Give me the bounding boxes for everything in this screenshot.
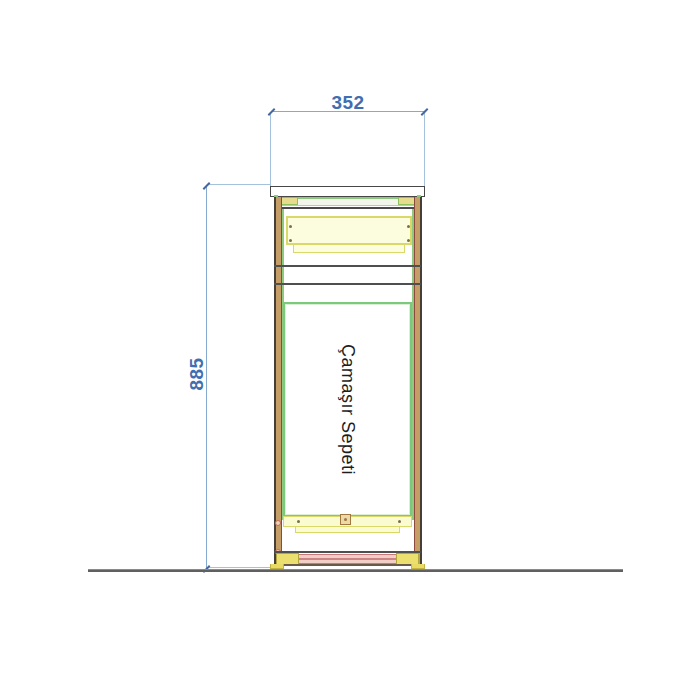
width-extension-line-left [270,112,271,186]
side-panel-right [414,197,422,569]
height-dimension-label: 885 [187,343,207,405]
cam-lock-fitting [275,520,281,526]
base-panel-line [284,558,411,560]
side-panel-left [274,197,282,569]
foot-pad-right [411,564,425,569]
height-extension-line-bottom [207,567,273,568]
divider-shelf-bottom-line [274,283,421,285]
height-dimension-line [206,185,207,569]
width-dimension-line [271,111,425,112]
screw-dot [407,239,410,242]
bottom-hardware-band-lower [295,527,400,533]
door-panel: Çamaşır Sepeti [283,302,412,517]
screw-dot [289,239,292,242]
inner-edge-right [412,209,414,520]
cabinet-top-panel [270,186,425,197]
ground-line [88,569,623,572]
center-fitting-dot [344,518,347,521]
divider-shelf-top-line [274,265,421,267]
foot-pad-left [270,564,284,569]
screw-dot [407,225,410,228]
screw-dot [398,520,401,523]
door-label: Çamaşır Sepeti [337,344,358,475]
top-rail-line [275,207,421,209]
screw-dot [297,520,300,523]
base-bottom-line [274,564,421,566]
width-extension-line-right [424,112,425,186]
drawer-front-lip [293,245,405,253]
drawer-front [286,216,412,245]
technical-drawing-canvas: 352 885 Çamaşır Sepeti [0,0,700,700]
height-extension-line-top [207,184,271,185]
screw-dot [289,225,292,228]
